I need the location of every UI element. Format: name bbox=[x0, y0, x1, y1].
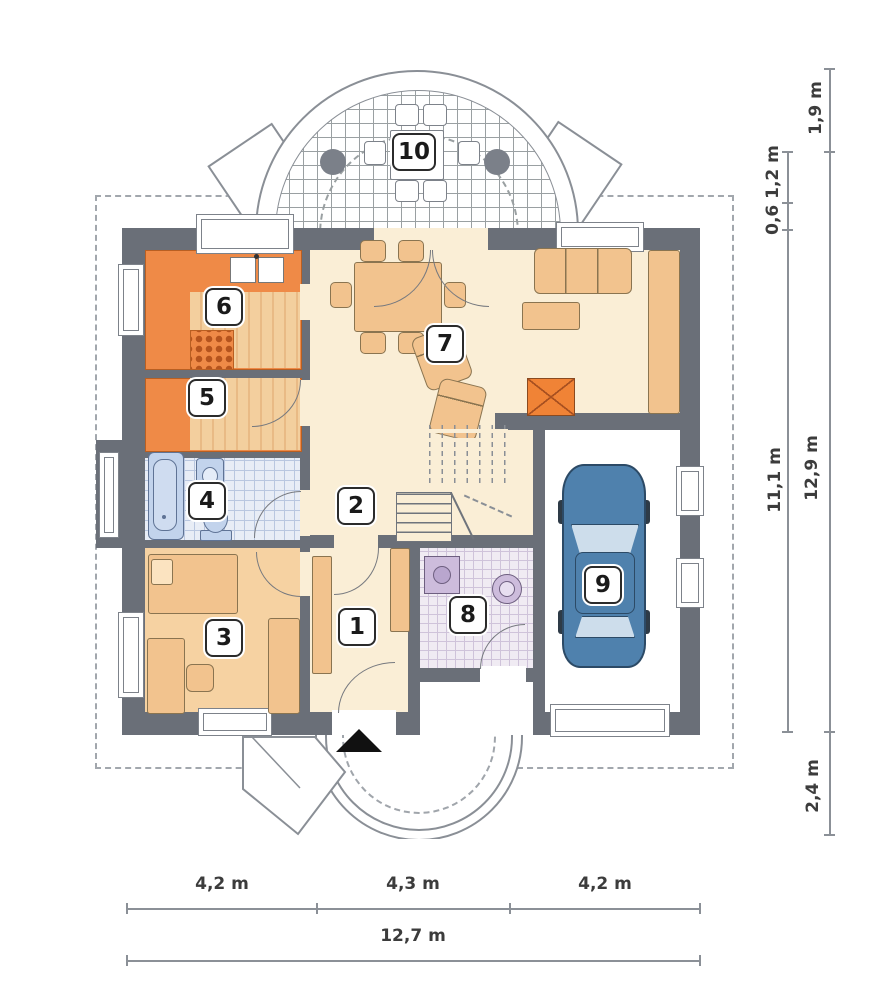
dim-tick bbox=[782, 731, 793, 733]
dim-label-bottom-middle: 4,3 m bbox=[386, 874, 440, 894]
room-label-1: 1 bbox=[338, 608, 376, 646]
entry-door-opening bbox=[334, 535, 378, 548]
terrace-planter bbox=[320, 149, 346, 175]
bath-door-opening bbox=[300, 490, 310, 536]
room-number: 2 bbox=[348, 493, 364, 519]
bathtub-inner bbox=[153, 459, 177, 531]
washer-drum bbox=[433, 566, 451, 584]
dim-label-bottom-left: 4,2 m bbox=[195, 874, 249, 894]
utility-sink bbox=[492, 574, 522, 604]
car-rear-window bbox=[575, 616, 635, 638]
dim-tick bbox=[316, 903, 318, 914]
dim-tick bbox=[782, 151, 793, 153]
terrace-chair bbox=[395, 180, 419, 202]
dim-label-bottom-right: 4,2 m bbox=[578, 874, 632, 894]
terrace-chair bbox=[458, 141, 480, 165]
bed bbox=[148, 554, 238, 614]
garage-door bbox=[550, 704, 670, 737]
terrace-chair bbox=[423, 104, 447, 126]
dining-chair bbox=[360, 332, 386, 354]
room-label-7: 7 bbox=[426, 325, 464, 363]
terrace-chair bbox=[395, 104, 419, 126]
dim-tick bbox=[824, 834, 835, 836]
entrance-arrow bbox=[336, 729, 382, 752]
dim-tick bbox=[824, 731, 835, 733]
dim-tick bbox=[699, 955, 701, 966]
garage-right-window bbox=[676, 558, 704, 608]
stairs-lower-flight bbox=[396, 492, 452, 542]
room-label-3: 3 bbox=[205, 619, 243, 657]
bedroom-bottom-window bbox=[198, 708, 272, 736]
room-label-2: 2 bbox=[337, 487, 375, 525]
dim-tick bbox=[782, 229, 793, 231]
fireplace bbox=[527, 378, 575, 416]
sofa bbox=[534, 248, 632, 294]
desk bbox=[147, 638, 185, 714]
washing-machine bbox=[424, 556, 460, 594]
dim-label-right-inner-top: 0,6 1,2 m bbox=[763, 145, 783, 235]
dim-line-right-outer bbox=[829, 69, 831, 835]
pantry-door-opening bbox=[300, 380, 310, 426]
dim-tick bbox=[509, 903, 511, 914]
terrace-door-opening bbox=[374, 228, 488, 250]
dim-label-bottom-total: 12,7 m bbox=[380, 926, 446, 946]
sink-bowl bbox=[258, 257, 284, 283]
bathtub bbox=[148, 452, 184, 540]
rear-porch-recess bbox=[420, 682, 533, 735]
room-number: 10 bbox=[398, 139, 430, 165]
stairs-upper-flight-dashed bbox=[418, 425, 508, 487]
dim-label-right-outer-main: 12,9 m bbox=[802, 435, 822, 501]
kitchen-hob bbox=[190, 330, 234, 370]
dim-line-bottom-outer bbox=[127, 960, 700, 962]
bedroom-door-opening bbox=[300, 552, 310, 596]
room-number: 7 bbox=[437, 331, 453, 357]
desk-chair bbox=[186, 664, 214, 692]
bathtub-drain bbox=[162, 515, 166, 519]
sideboard bbox=[648, 250, 680, 414]
bath-bay-window bbox=[99, 452, 119, 538]
dim-tick bbox=[824, 151, 835, 153]
room-number: 1 bbox=[349, 614, 365, 640]
room-label-8: 8 bbox=[449, 596, 487, 634]
room-label-5: 5 bbox=[188, 379, 226, 417]
dim-label-right-outer-top: 1,9 m bbox=[806, 81, 826, 135]
entry-closet bbox=[312, 556, 332, 674]
terrace-chair bbox=[364, 141, 386, 165]
dim-line-right-inner bbox=[787, 152, 789, 732]
room-label-10: 10 bbox=[392, 133, 436, 171]
pillow bbox=[151, 559, 173, 585]
sink-bowl bbox=[230, 257, 256, 283]
dining-chair bbox=[330, 282, 352, 308]
room-number: 8 bbox=[460, 602, 476, 628]
room-number: 4 bbox=[199, 488, 215, 514]
room-number: 5 bbox=[199, 385, 215, 411]
bedroom-left-window bbox=[118, 612, 144, 698]
dim-label-right-outer-bottom: 2,4 m bbox=[803, 759, 823, 813]
dim-tick bbox=[126, 903, 128, 914]
dim-tick bbox=[782, 202, 793, 204]
room-number: 3 bbox=[216, 625, 232, 651]
dim-label-right-inner-main: 11,1 m bbox=[765, 447, 785, 513]
kitchen-pass-opening bbox=[300, 284, 310, 320]
floor-plan-canvas: 1 2 3 4 5 6 7 8 9 10 0,6 1,2 m 11,1 m 1,… bbox=[0, 0, 871, 1000]
room-label-4: 4 bbox=[188, 482, 226, 520]
dim-tick bbox=[824, 68, 835, 70]
dim-tick bbox=[126, 955, 128, 966]
kitchen-top-window bbox=[196, 214, 294, 254]
kitchen-left-window bbox=[118, 264, 144, 336]
room-number: 6 bbox=[216, 294, 232, 320]
garage-right-window bbox=[676, 466, 704, 516]
entry-closet bbox=[390, 548, 410, 632]
wardrobe bbox=[268, 618, 300, 714]
dim-tick bbox=[699, 903, 701, 914]
terrace-chair bbox=[423, 180, 447, 202]
utility-sink-bowl bbox=[499, 581, 515, 597]
faucet bbox=[254, 254, 259, 259]
dim-line-bottom-inner bbox=[127, 908, 700, 910]
room-label-9: 9 bbox=[584, 566, 622, 604]
coffee-table bbox=[522, 302, 580, 330]
kitchen-sink bbox=[228, 254, 286, 284]
room-number: 9 bbox=[595, 572, 611, 598]
terrace-planter bbox=[484, 149, 510, 175]
room-label-6: 6 bbox=[205, 288, 243, 326]
